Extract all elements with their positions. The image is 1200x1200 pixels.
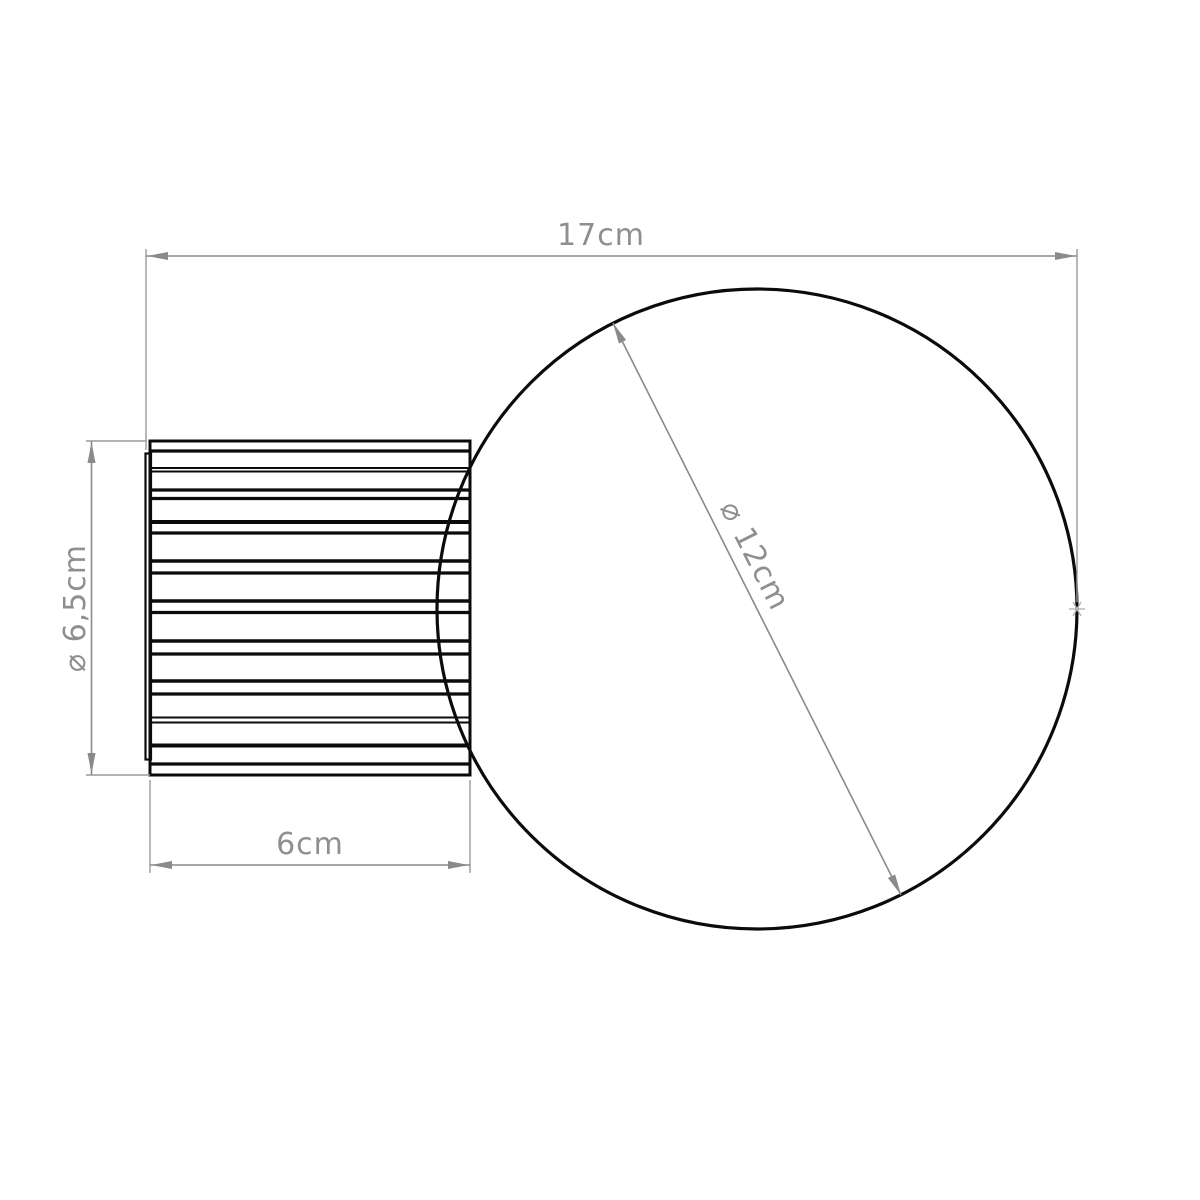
dimension-base-diameter: ⌀ 6,5cm xyxy=(58,441,150,775)
arrowhead-lower-icon xyxy=(888,874,901,895)
arrowhead-right-icon xyxy=(1055,252,1076,260)
base-body xyxy=(146,441,471,775)
arrowhead-upper-icon xyxy=(613,323,626,344)
drawing-sheet: 17cm ⌀ 6,5cm 6cm ⌀ 12cm xyxy=(0,0,1200,1200)
dimension-line xyxy=(613,323,901,895)
dimension-label-overall-width: 17cm xyxy=(557,218,645,253)
arrowhead-left-icon xyxy=(147,252,168,260)
dimension-globe-diameter: ⌀ 12cm xyxy=(613,323,901,895)
dimension-base-length: 6cm xyxy=(150,780,470,873)
dimension-label-base-diameter: ⌀ 6,5cm xyxy=(58,544,93,672)
dimension-label-base-length: 6cm xyxy=(276,827,344,862)
dimension-label-globe-diameter: ⌀ 12cm xyxy=(712,495,796,616)
arrowhead-up-icon xyxy=(88,442,96,463)
technical-drawing-canvas: 17cm ⌀ 6,5cm 6cm ⌀ 12cm xyxy=(0,0,1200,1200)
arrowhead-left-icon xyxy=(151,861,172,869)
base-ribs xyxy=(151,451,469,764)
dimension-overall-width: 17cm xyxy=(146,218,1077,602)
mounting-plate-edge xyxy=(146,454,152,760)
arrowhead-right-icon xyxy=(448,861,469,869)
arrowhead-down-icon xyxy=(88,753,96,774)
